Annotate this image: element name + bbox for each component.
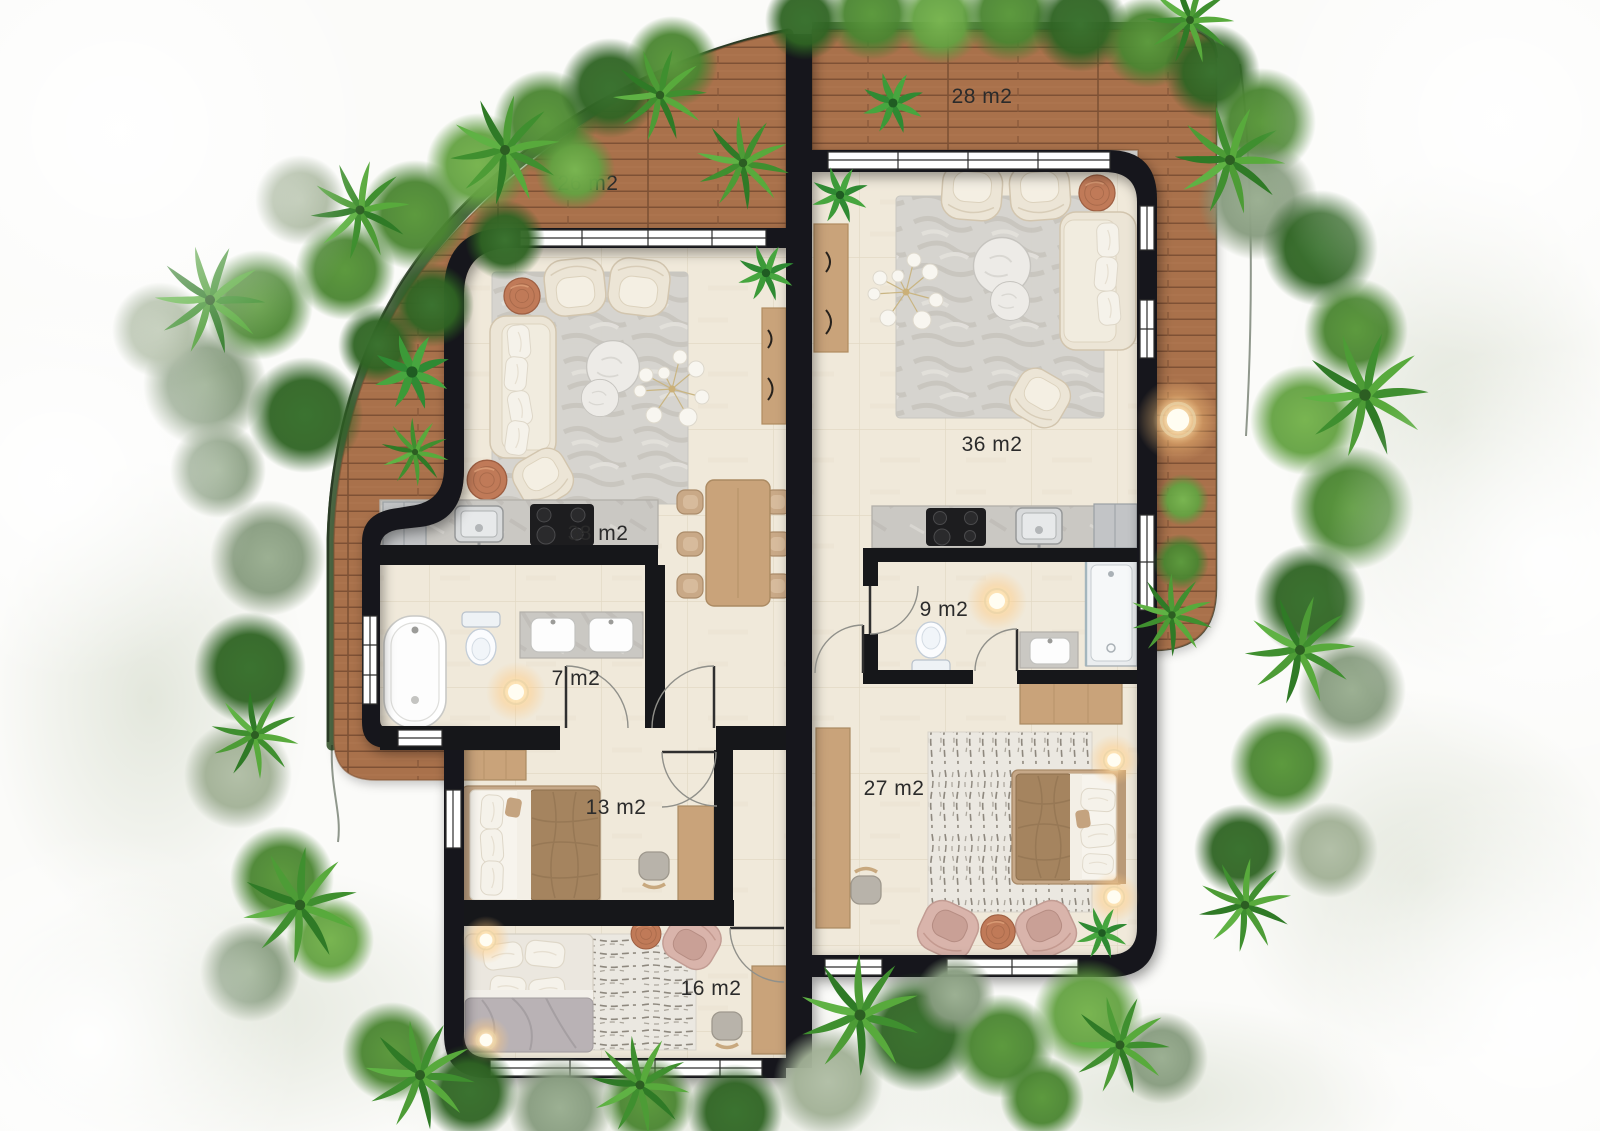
armchair (542, 256, 608, 318)
room-label-right-bathroom: 9 m2 (920, 598, 969, 621)
window (520, 230, 766, 246)
sofa (1060, 212, 1136, 350)
side-table (504, 278, 540, 314)
cooktop (926, 508, 986, 546)
window (1140, 300, 1154, 358)
tree (1116, 1012, 1208, 1104)
dining-chair (677, 532, 703, 556)
side-table (1079, 175, 1115, 211)
window (1140, 206, 1154, 250)
room-label-left-living: 38 m2 (568, 522, 629, 545)
tree (1194, 804, 1286, 896)
coffee-table (581, 379, 618, 416)
side-table (981, 915, 1015, 949)
pillow (1082, 853, 1114, 874)
floor-plan-svg: 26 m2 28 m2 38 m2 36 m2 7 m2 9 m2 13 m2 … (0, 0, 1600, 1131)
tree (465, 200, 545, 280)
window (1140, 515, 1154, 610)
terrace-lamp (1136, 378, 1220, 462)
dining-chair (677, 490, 703, 514)
window (825, 959, 882, 975)
bathtub (384, 616, 446, 728)
floor-plan-scene: 26 m2 28 m2 38 m2 36 m2 7 m2 9 m2 13 m2 … (0, 0, 1600, 1131)
wardrobe (1020, 682, 1122, 724)
lamp (486, 662, 546, 722)
lamp (462, 916, 510, 964)
room-label-left-bedroom-2: 16 m2 (681, 977, 742, 1000)
window (446, 790, 461, 848)
shower (1086, 560, 1137, 666)
wardrobe (462, 750, 526, 780)
console-table (814, 224, 848, 352)
pillow (524, 939, 566, 968)
window (828, 152, 1110, 169)
side-table (467, 460, 507, 500)
pillow (480, 794, 504, 829)
desk (678, 806, 714, 902)
coffee-table (991, 282, 1030, 321)
window (398, 730, 442, 746)
desk (816, 728, 850, 928)
tree (1157, 474, 1209, 526)
pillow (480, 861, 503, 896)
bed (462, 786, 600, 904)
room-label-right-bedroom: 27 m2 (864, 777, 925, 800)
refrigerator (1094, 504, 1137, 548)
room-label-right-living: 36 m2 (962, 433, 1023, 456)
right-kitchen (872, 504, 1137, 552)
dining-table-set (677, 480, 791, 606)
dining-chair (677, 574, 703, 598)
pillow (1080, 788, 1115, 812)
bed (1012, 770, 1126, 884)
vanity-sink (1020, 632, 1078, 668)
armchair (606, 256, 672, 319)
room-label-left-bedroom-1: 13 m2 (586, 796, 647, 819)
tree (247, 357, 363, 473)
sofa (490, 316, 556, 458)
desk (752, 966, 786, 1054)
room-label-left-bathroom: 7 m2 (552, 667, 601, 690)
room-label-right-terrace: 28 m2 (952, 85, 1013, 108)
sideboard (762, 308, 786, 424)
lamp (1089, 735, 1140, 786)
tree (1153, 534, 1209, 590)
lamp (967, 571, 1027, 631)
pillow (480, 828, 504, 863)
window (363, 616, 377, 704)
vanity-double-sink (520, 612, 643, 658)
party-wall (786, 34, 812, 1068)
tree (1230, 712, 1334, 816)
tree (915, 955, 995, 1035)
